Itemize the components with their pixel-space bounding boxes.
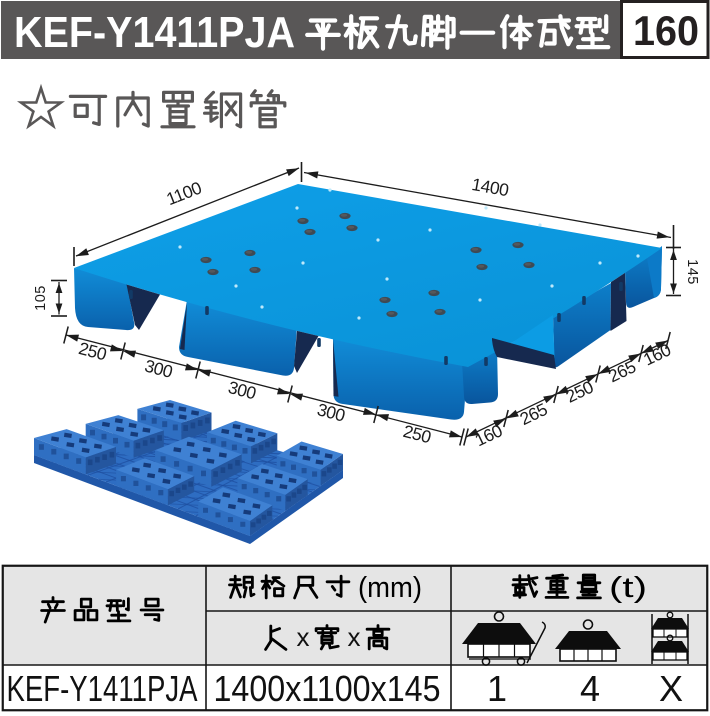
svg-text:x: x: [348, 622, 361, 652]
svg-text:1: 1: [487, 668, 507, 709]
svg-text:KEF-Y1411PJA: KEF-Y1411PJA: [14, 8, 295, 57]
svg-text:(t): (t): [609, 572, 647, 604]
svg-text:105: 105: [33, 285, 49, 311]
svg-text:X: X: [659, 668, 683, 709]
svg-text:160: 160: [633, 7, 699, 54]
svg-text:(mm): (mm): [358, 572, 422, 604]
svg-text:x: x: [297, 622, 310, 652]
svg-text:1400x1100x145: 1400x1100x145: [214, 668, 441, 709]
svg-text:4: 4: [580, 668, 600, 709]
svg-text:145: 145: [684, 259, 700, 285]
svg-text:KEF-Y1411PJA: KEF-Y1411PJA: [7, 668, 198, 709]
